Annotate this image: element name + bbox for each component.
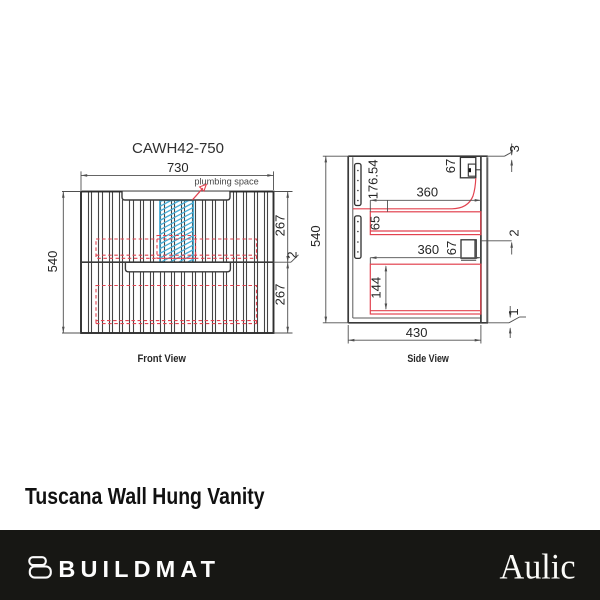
svg-text:540: 540 — [45, 251, 60, 273]
svg-text:Tuscana Wall Hung Vanity: Tuscana Wall Hung Vanity — [25, 483, 265, 509]
svg-text:65: 65 — [367, 216, 382, 230]
svg-text:540: 540 — [308, 225, 323, 247]
svg-text:360: 360 — [417, 242, 439, 257]
svg-text:730: 730 — [167, 160, 189, 175]
svg-text:Aulic: Aulic — [500, 546, 576, 586]
svg-text:1: 1 — [506, 308, 521, 315]
svg-text:267: 267 — [272, 284, 287, 306]
svg-text:2: 2 — [285, 251, 300, 258]
svg-text:3: 3 — [507, 145, 522, 152]
svg-text:Front View: Front View — [137, 353, 186, 365]
svg-text:67: 67 — [443, 159, 458, 173]
svg-text:430: 430 — [406, 325, 428, 340]
svg-text:2: 2 — [506, 229, 521, 236]
svg-text:267: 267 — [272, 215, 287, 237]
svg-text:Side View: Side View — [407, 353, 449, 365]
svg-text:BUILDMAT: BUILDMAT — [58, 556, 215, 582]
svg-text:CAWH42-750: CAWH42-750 — [132, 140, 224, 157]
svg-text:144: 144 — [368, 277, 383, 299]
svg-text:360: 360 — [416, 185, 438, 200]
svg-text:176.54: 176.54 — [365, 160, 380, 200]
svg-text:67: 67 — [444, 241, 459, 255]
